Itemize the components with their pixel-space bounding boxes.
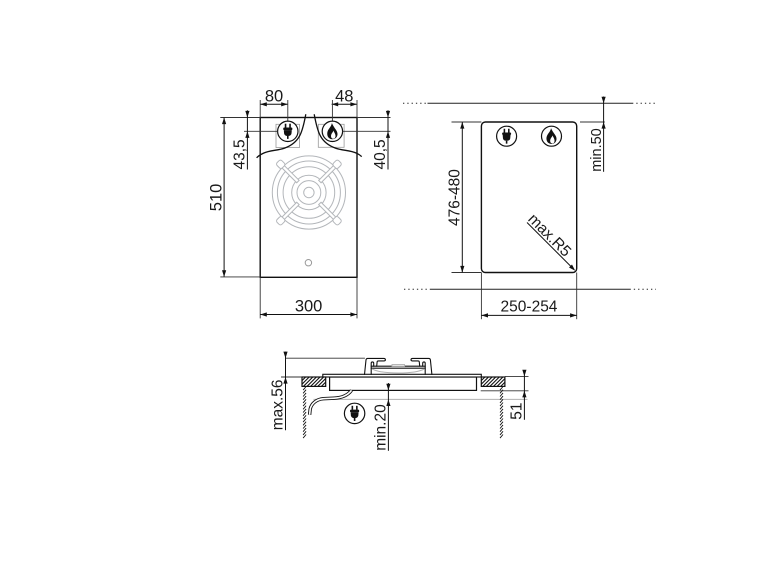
svg-text:300: 300	[295, 297, 323, 315]
svg-text:510: 510	[208, 184, 226, 212]
svg-text:250-254: 250-254	[501, 298, 558, 315]
svg-text:80: 80	[265, 87, 283, 105]
svg-text:min.50: min.50	[589, 128, 605, 172]
svg-text:min.20: min.20	[373, 404, 390, 451]
svg-text:max.56: max.56	[270, 379, 287, 430]
svg-text:40,5: 40,5	[372, 139, 389, 169]
svg-text:43,5: 43,5	[232, 139, 249, 169]
svg-text:48: 48	[335, 87, 353, 105]
svg-text:476-480: 476-480	[447, 169, 464, 226]
svg-text:51: 51	[509, 403, 526, 420]
